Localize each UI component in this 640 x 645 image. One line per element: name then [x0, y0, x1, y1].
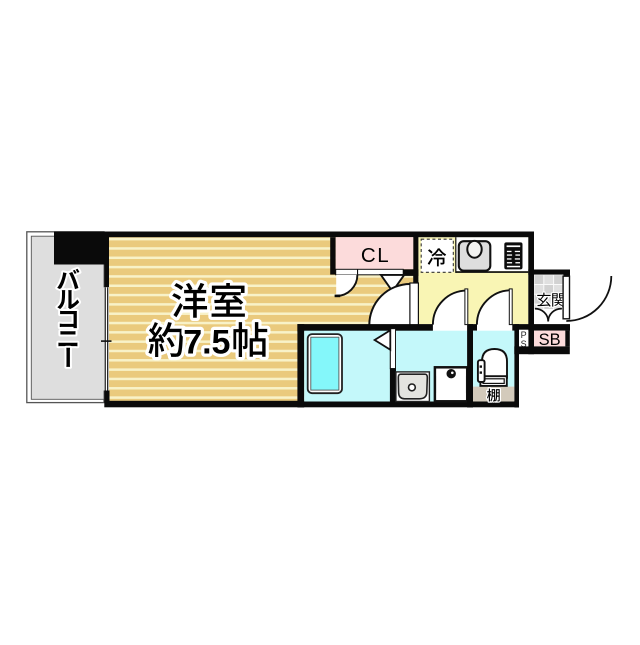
svg-text:7.5: 7.5 — [183, 324, 230, 362]
svg-text:SB: SB — [539, 331, 561, 349]
svg-text:CL: CL — [361, 244, 390, 267]
